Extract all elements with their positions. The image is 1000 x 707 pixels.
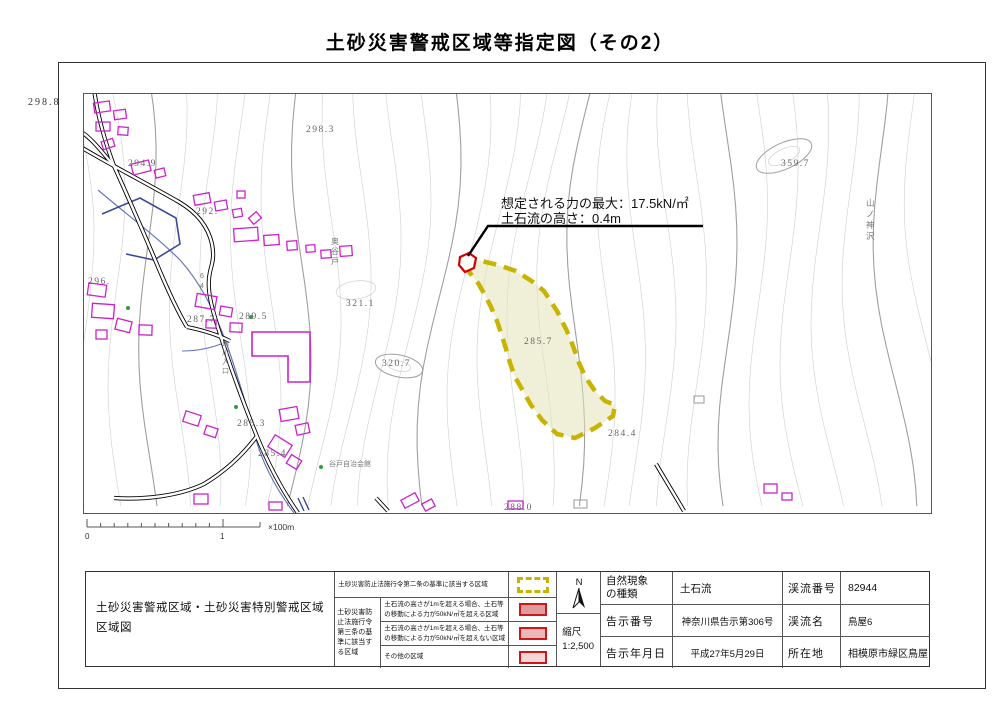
north-arrow-solid-half — [579, 588, 585, 608]
legend-row-other-swatch — [508, 645, 557, 668]
special-zone-polygon — [459, 253, 476, 272]
legend-row-under50: 土石流の高さが1mを超える場合、土石等の移動による力が50kN/㎡を超えない区域 — [380, 621, 508, 645]
info-grid: 自然現象の種類 土石流 渓流番号 82944 告示番号 神奈川県告示第306号 … — [600, 572, 929, 666]
notice-date-value: 平成27年5月29日 — [672, 636, 782, 668]
contour-loops — [335, 132, 817, 382]
scale-unit-label: ×100m — [268, 522, 294, 532]
label-okuyato: 奥 谷 戸 — [331, 236, 341, 266]
svg-text:292.: 292. — [196, 207, 219, 217]
special-zone-swatch-light — [519, 651, 547, 664]
compass-scale-block: N 縮尺 1:2,500 — [556, 572, 600, 666]
svg-text:359.7: 359.7 — [781, 159, 810, 169]
notice-number-label: 告示番号 — [601, 604, 672, 636]
stream-name-value: 鳥屋6 — [840, 604, 930, 636]
phenomenon-value: 土石流 — [672, 572, 782, 604]
svg-text:320.7: 320.7 — [382, 359, 411, 369]
buildings — [87, 101, 792, 511]
svg-text:284.4: 284.4 — [608, 429, 637, 439]
legend-row-over50-swatch — [508, 597, 557, 621]
special-zone-swatch-dark — [519, 603, 547, 616]
roads — [84, 94, 684, 513]
scale-ratio-value: 1:2,500 — [562, 640, 600, 654]
stream-number-label: 渓流番号 — [782, 572, 840, 604]
legend-article3-group-label: 土砂災害防止法施行令第三条の基準に該当する区域 — [335, 597, 380, 668]
map-sheet-title: 土砂災害警戒区域・土砂災害特別警戒区域 区域図 — [86, 572, 334, 666]
scale-zero-label: 0 — [85, 532, 90, 541]
svg-text:289.5: 289.5 — [239, 312, 268, 322]
scale-ratio-label: 縮尺 — [562, 626, 600, 640]
map-corner-elevation: 298.8 — [28, 97, 61, 108]
legend-article2-swatch — [508, 572, 557, 597]
legend-article2-label: 土砂災害防止法施行令第二条の基準に該当する区域 — [335, 572, 508, 597]
elevation-labels: 298.3 359.7 294.9 292. 296. 287.7 289.5 … — [88, 125, 810, 513]
hazard-zone-polygon — [463, 260, 615, 438]
svg-text:285.7: 285.7 — [524, 337, 553, 347]
special-zone-swatch-mid — [519, 627, 547, 640]
annotation-line2: 土石流の高さ：0.4m — [501, 211, 621, 226]
hazard-zone-swatch — [517, 577, 549, 593]
legend-block: 土砂災害防止法施行令第二条の基準に該当する区域 土砂災害防止法施行令第三条の基準… — [334, 572, 556, 666]
north-arrow: N — [557, 572, 600, 614]
notice-date-label: 告示年月日 — [601, 636, 672, 668]
stream-number-value: 82944 — [840, 572, 930, 604]
location-label: 所在地 — [782, 636, 840, 668]
annotation-line1: 想定される力の最大：17.5kN/㎡ — [501, 196, 689, 211]
vegetation-marks — [126, 306, 323, 469]
north-arrow-open-half — [573, 588, 579, 608]
scale-bar: 0 1 ×100m — [85, 518, 345, 544]
stream-name-label: 渓流名 — [782, 604, 840, 636]
map-canvas: 想定される力の最大：17.5kN/㎡ 土石流の高さ：0.4m 298.3 359… — [83, 93, 932, 514]
label-route-number: 6 4 — [200, 273, 206, 290]
location-value: 相模原市緑区鳥屋 — [840, 636, 930, 668]
svg-text:288.0: 288.0 — [504, 503, 533, 513]
phenomenon-label: 自然現象の種類 — [601, 572, 672, 604]
annotation-callout: 想定される力の最大：17.5kN/㎡ 土石流の高さ：0.4m — [468, 196, 703, 256]
svg-text:296.: 296. — [88, 277, 111, 287]
page-title: 土砂災害警戒区域等指定図（その2） — [0, 28, 1000, 55]
svg-text:285.4: 285.4 — [258, 449, 287, 459]
notice-number-value: 神奈川県告示第306号 — [672, 604, 782, 636]
label-community-hall: 谷戸自治会館 — [329, 459, 371, 468]
legend-row-over50: 土石流の高さが1mを超える場合、土石等の移動による力が50kN/㎡を超える区域 — [380, 597, 508, 621]
svg-text:287.7: 287.7 — [187, 315, 216, 325]
legend-row-under50-swatch — [508, 621, 557, 645]
map-sheet-title-line1: 土砂災害警戒区域・土砂災害特別警戒区域 — [96, 599, 334, 619]
label-yamanokami-sawa: 山 ノ 神 沢 — [866, 198, 877, 241]
legend-row-other: その他の区域 — [380, 645, 508, 668]
svg-text:285.3: 285.3 — [237, 419, 266, 429]
scale-bar-ticks — [87, 519, 260, 527]
scale-ratio: 縮尺 1:2,500 — [557, 614, 600, 666]
north-label: N — [575, 577, 582, 588]
building-large — [252, 332, 310, 382]
svg-text:298.3: 298.3 — [306, 125, 335, 135]
svg-text:321.1: 321.1 — [346, 299, 375, 309]
legend-table: 土砂災害警戒区域・土砂災害特別警戒区域 区域図 土砂災害防止法施行令第二条の基準… — [85, 571, 930, 667]
document-page: 土砂災害警戒区域等指定図（その2） 298.8 — [0, 0, 1000, 707]
scale-one-label: 1 — [220, 532, 225, 541]
map-sheet-title-line2: 区域図 — [96, 619, 334, 639]
svg-text:294.9: 294.9 — [128, 159, 157, 169]
